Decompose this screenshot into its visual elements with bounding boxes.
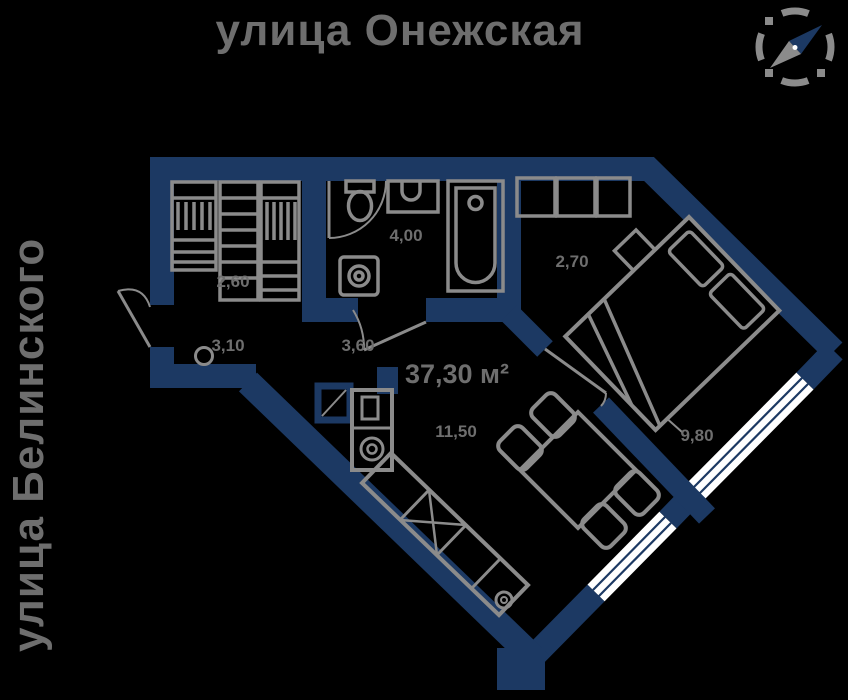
glazing-line: [700, 384, 808, 493]
bathtub-drain: [469, 197, 482, 210]
hall-closet: [517, 178, 630, 216]
entry-stool: [196, 348, 213, 365]
closet-cell: [517, 178, 555, 216]
sink: [388, 181, 438, 212]
area-label-corridor: 3,60: [341, 336, 374, 355]
dining-set: [495, 390, 661, 550]
area-label-hall: 2,70: [555, 252, 588, 271]
washing-machine-door: [355, 272, 363, 280]
compass-center: [793, 45, 798, 50]
closet-cell: [597, 178, 630, 216]
floorplan-page: улица Онежская улица Белинского: [0, 0, 848, 700]
area-label-entry: 3,10: [211, 336, 244, 355]
kitchen-sink: [361, 438, 383, 460]
counter-sink: [496, 592, 512, 608]
washing-machine-drum: [349, 266, 369, 286]
kitchen-sink-drain: [368, 445, 377, 454]
compass-dot: [765, 17, 773, 25]
compass-dot: [817, 17, 825, 25]
wall-pier: [805, 351, 834, 381]
counter-sink-drain: [501, 597, 507, 603]
compass-dot: [817, 69, 825, 77]
wardrobe-shelves: [172, 198, 216, 262]
bathtub-inner: [456, 188, 495, 283]
compass-dot: [765, 69, 773, 77]
bathroom-inner-door-arc: [329, 181, 386, 238]
compass-icon: [759, 11, 831, 83]
wall-bathroom-bottom-left: [302, 298, 358, 322]
entrance-door-leaf: [118, 291, 150, 347]
total-area-label: 37,30 м²: [405, 359, 509, 389]
closet-cell: [557, 178, 595, 216]
area-label-wardrobe: 2,60: [216, 272, 249, 291]
sink-basin: [402, 181, 420, 200]
wall-bottom-tip: [497, 648, 545, 690]
glazing-line: [593, 517, 665, 590]
glazing-line: [599, 523, 671, 596]
washing-machine: [340, 257, 378, 295]
area-label-bathroom: 4,00: [389, 226, 422, 245]
wall-left-lower: [150, 347, 174, 388]
toilet-bowl: [349, 192, 372, 221]
area-label-kitchen-living: 11,50: [435, 422, 477, 441]
floor-plan: 2,60 4,00 2,70 3,10 3,60 11,50 9,80 37,3…: [0, 0, 848, 700]
wall-bedroom-upper: [509, 313, 545, 349]
wardrobe-shelves: [261, 198, 299, 290]
oven: [362, 397, 378, 419]
living-window: [596, 520, 668, 593]
wall-wardrobe-bathroom: [302, 181, 326, 301]
wardrobe-shelves: [220, 198, 258, 278]
window-band: [593, 378, 808, 596]
area-label-bedroom: 9,80: [680, 426, 713, 445]
